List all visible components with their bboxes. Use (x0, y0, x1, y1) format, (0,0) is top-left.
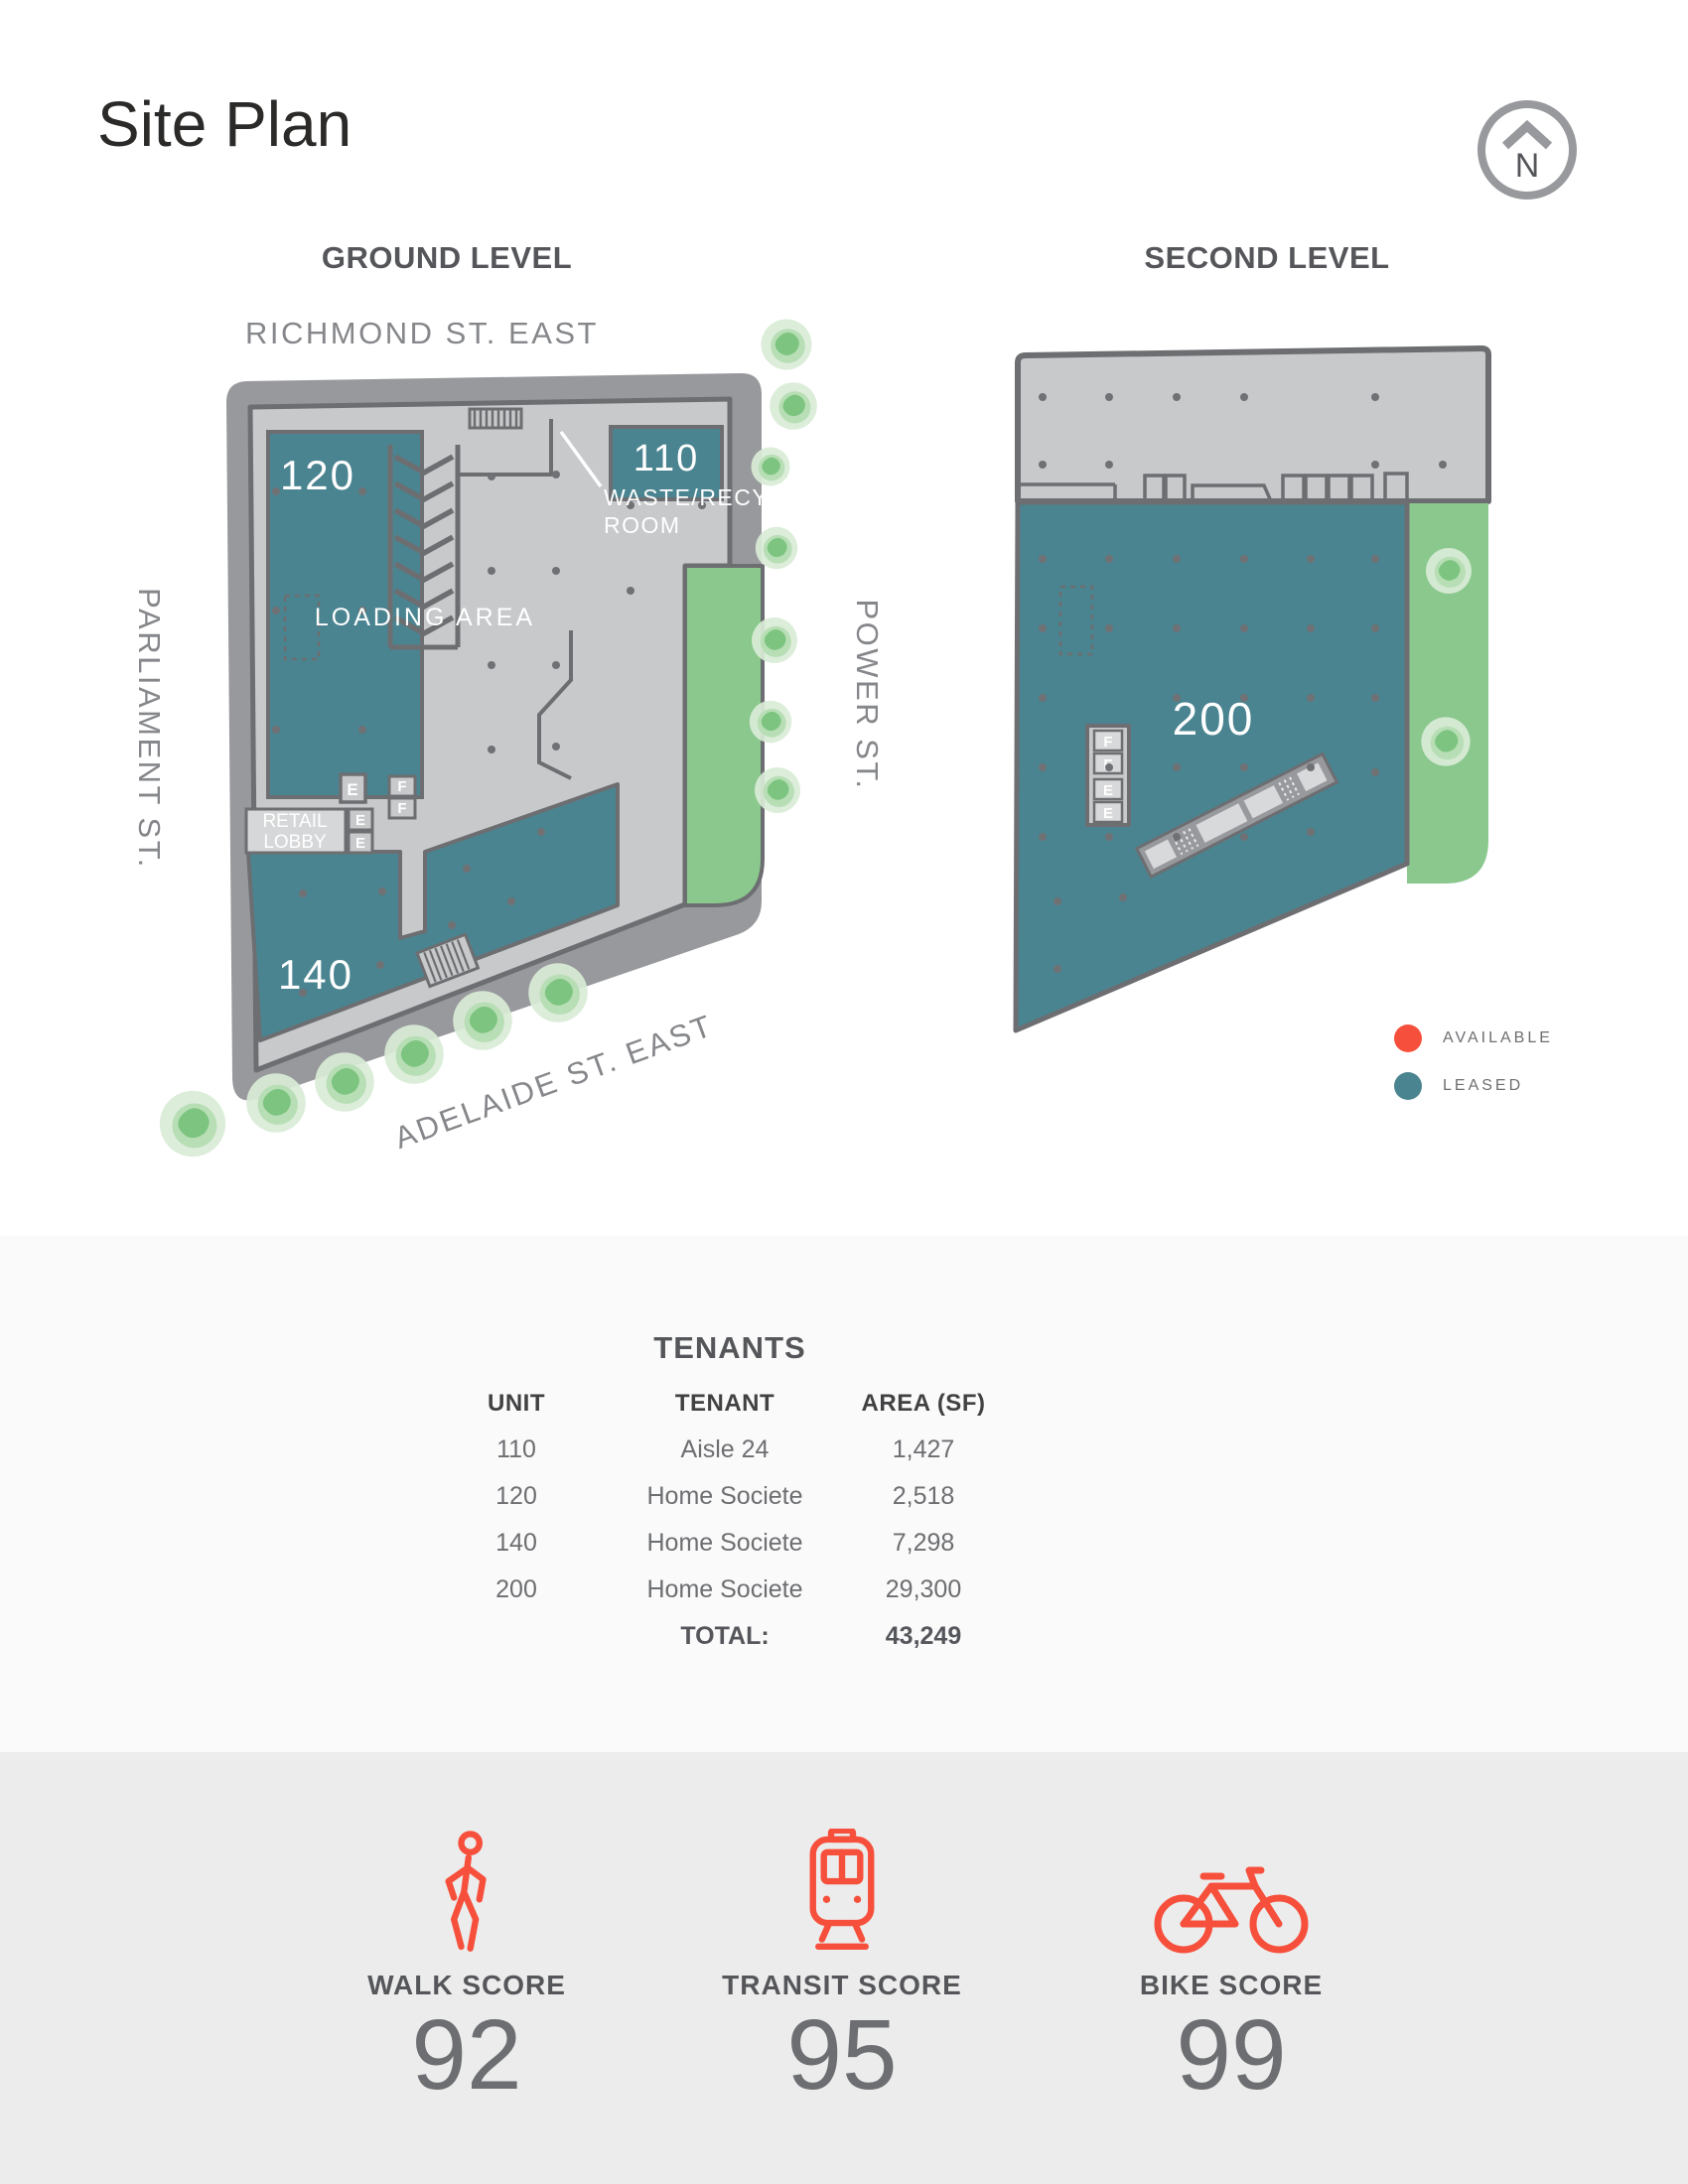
unit-120-label: 120 (280, 452, 355, 498)
table-total-value: 43,249 (834, 1622, 1013, 1651)
table-cell-area: 2,518 (834, 1482, 1013, 1511)
entry-stairs (470, 409, 521, 428)
column-header-tenant: TENANT (616, 1390, 834, 1418)
unit-200-area (1016, 502, 1407, 1030)
retail-lobby: RETAIL LOBBY (246, 809, 346, 853)
tree-icon (379, 1020, 449, 1089)
bike-score-block: BIKE SCORE 99 (1082, 1827, 1380, 2108)
svg-text:E: E (355, 835, 365, 852)
unit-200-label: 200 (1173, 693, 1255, 745)
svg-text:RETAIL: RETAIL (262, 811, 327, 832)
waste-room-label-line2: ROOM (604, 512, 681, 538)
loading-area-label: LOADING AREA (315, 604, 535, 631)
table-cell-area: 1,427 (834, 1435, 1013, 1464)
svg-text:E: E (355, 812, 365, 829)
tree-icon (752, 523, 801, 573)
second-roof-strip (1018, 348, 1488, 501)
svg-text:E: E (1103, 782, 1113, 799)
second-level-heading: SECOND LEVEL (1058, 240, 1476, 276)
walk-icon (318, 1827, 616, 1956)
north-letter: N (1515, 147, 1540, 185)
column-header-area: AREA (SF) (834, 1390, 1013, 1418)
second-elevator-stack: F F E E (1087, 726, 1129, 825)
table-cell-unit: 120 (417, 1482, 616, 1511)
transit-score-label: TRANSIT SCORE (693, 1970, 991, 2001)
stair-ff-boxes: F F (389, 776, 415, 818)
table-cell-tenant: Home Societe (616, 1575, 834, 1604)
legend-row-available: AVAILABLE (1393, 1015, 1651, 1062)
table-cell-empty (417, 1622, 616, 1651)
table-cell-area: 29,300 (834, 1575, 1013, 1604)
street-label-power: POWER ST. (849, 546, 885, 844)
north-compass-icon: N (1475, 97, 1580, 203)
street-label-parliament: PARLIAMENT ST. (131, 548, 167, 909)
svg-text:F: F (397, 800, 406, 817)
elevator-e-box: E (341, 774, 365, 802)
tree-icon (757, 315, 816, 374)
legend-label-leased: LEASED (1443, 1077, 1523, 1095)
tenants-table: UNIT TENANT AREA (SF) 110 Aisle 24 1,427… (417, 1390, 1013, 1651)
tree-icon (1417, 713, 1475, 770)
transit-score-block: TRANSIT SCORE 95 (693, 1827, 991, 2108)
walk-score-value: 92 (318, 2003, 616, 2108)
leased-dot-icon (1393, 1071, 1423, 1101)
transit-score-value: 95 (693, 2003, 991, 2108)
legend-row-leased: LEASED (1393, 1062, 1651, 1110)
svg-text:E: E (347, 780, 357, 799)
elevator-ee-boxes: E E (349, 809, 372, 853)
tree-icon (448, 986, 517, 1055)
tree-icon (746, 697, 795, 747)
table-total-label: TOTAL: (616, 1622, 834, 1651)
tree-icon (523, 958, 593, 1027)
bike-icon (1082, 1827, 1380, 1956)
street-label-richmond: RICHMOND ST. EAST (174, 316, 670, 351)
table-cell-tenant: Aisle 24 (616, 1435, 834, 1464)
tree-icon (1422, 544, 1476, 598)
table-cell-unit: 140 (417, 1529, 616, 1558)
svg-text:F: F (1103, 734, 1112, 751)
table-cell-tenant: Home Societe (616, 1529, 834, 1558)
walk-score-block: WALK SCORE 92 (318, 1827, 616, 2108)
legend: AVAILABLE LEASED (1393, 1015, 1651, 1110)
legend-label-available: AVAILABLE (1443, 1029, 1553, 1047)
bike-score-label: BIKE SCORE (1082, 1970, 1380, 2001)
tenants-title: TENANTS (581, 1330, 879, 1366)
column-header-unit: UNIT (417, 1390, 616, 1418)
tree-icon (310, 1047, 379, 1117)
walk-score-label: WALK SCORE (318, 1970, 616, 2001)
second-level-plan: F F E E 200 (998, 345, 1524, 1040)
tree-icon (766, 378, 821, 434)
tree-icon (241, 1068, 311, 1138)
svg-text:F: F (397, 778, 406, 795)
tree-icon (154, 1085, 231, 1162)
ground-level-heading: GROUND LEVEL (238, 240, 655, 276)
bike-score-value: 99 (1082, 2003, 1380, 2108)
svg-text:LOBBY: LOBBY (263, 832, 327, 853)
svg-text:E: E (1103, 805, 1113, 822)
table-cell-area: 7,298 (834, 1529, 1013, 1558)
table-cell-tenant: Home Societe (616, 1482, 834, 1511)
unit-110-label: 110 (633, 438, 700, 479)
page-title: Site Plan (97, 87, 352, 161)
available-dot-icon (1393, 1024, 1423, 1053)
tree-icon (748, 614, 801, 667)
table-cell-unit: 110 (417, 1435, 616, 1464)
tree-icon (751, 763, 804, 817)
transit-icon (693, 1827, 991, 1956)
unit-140-label: 140 (278, 951, 353, 998)
tree-icon (748, 444, 793, 489)
table-cell-unit: 200 (417, 1575, 616, 1604)
